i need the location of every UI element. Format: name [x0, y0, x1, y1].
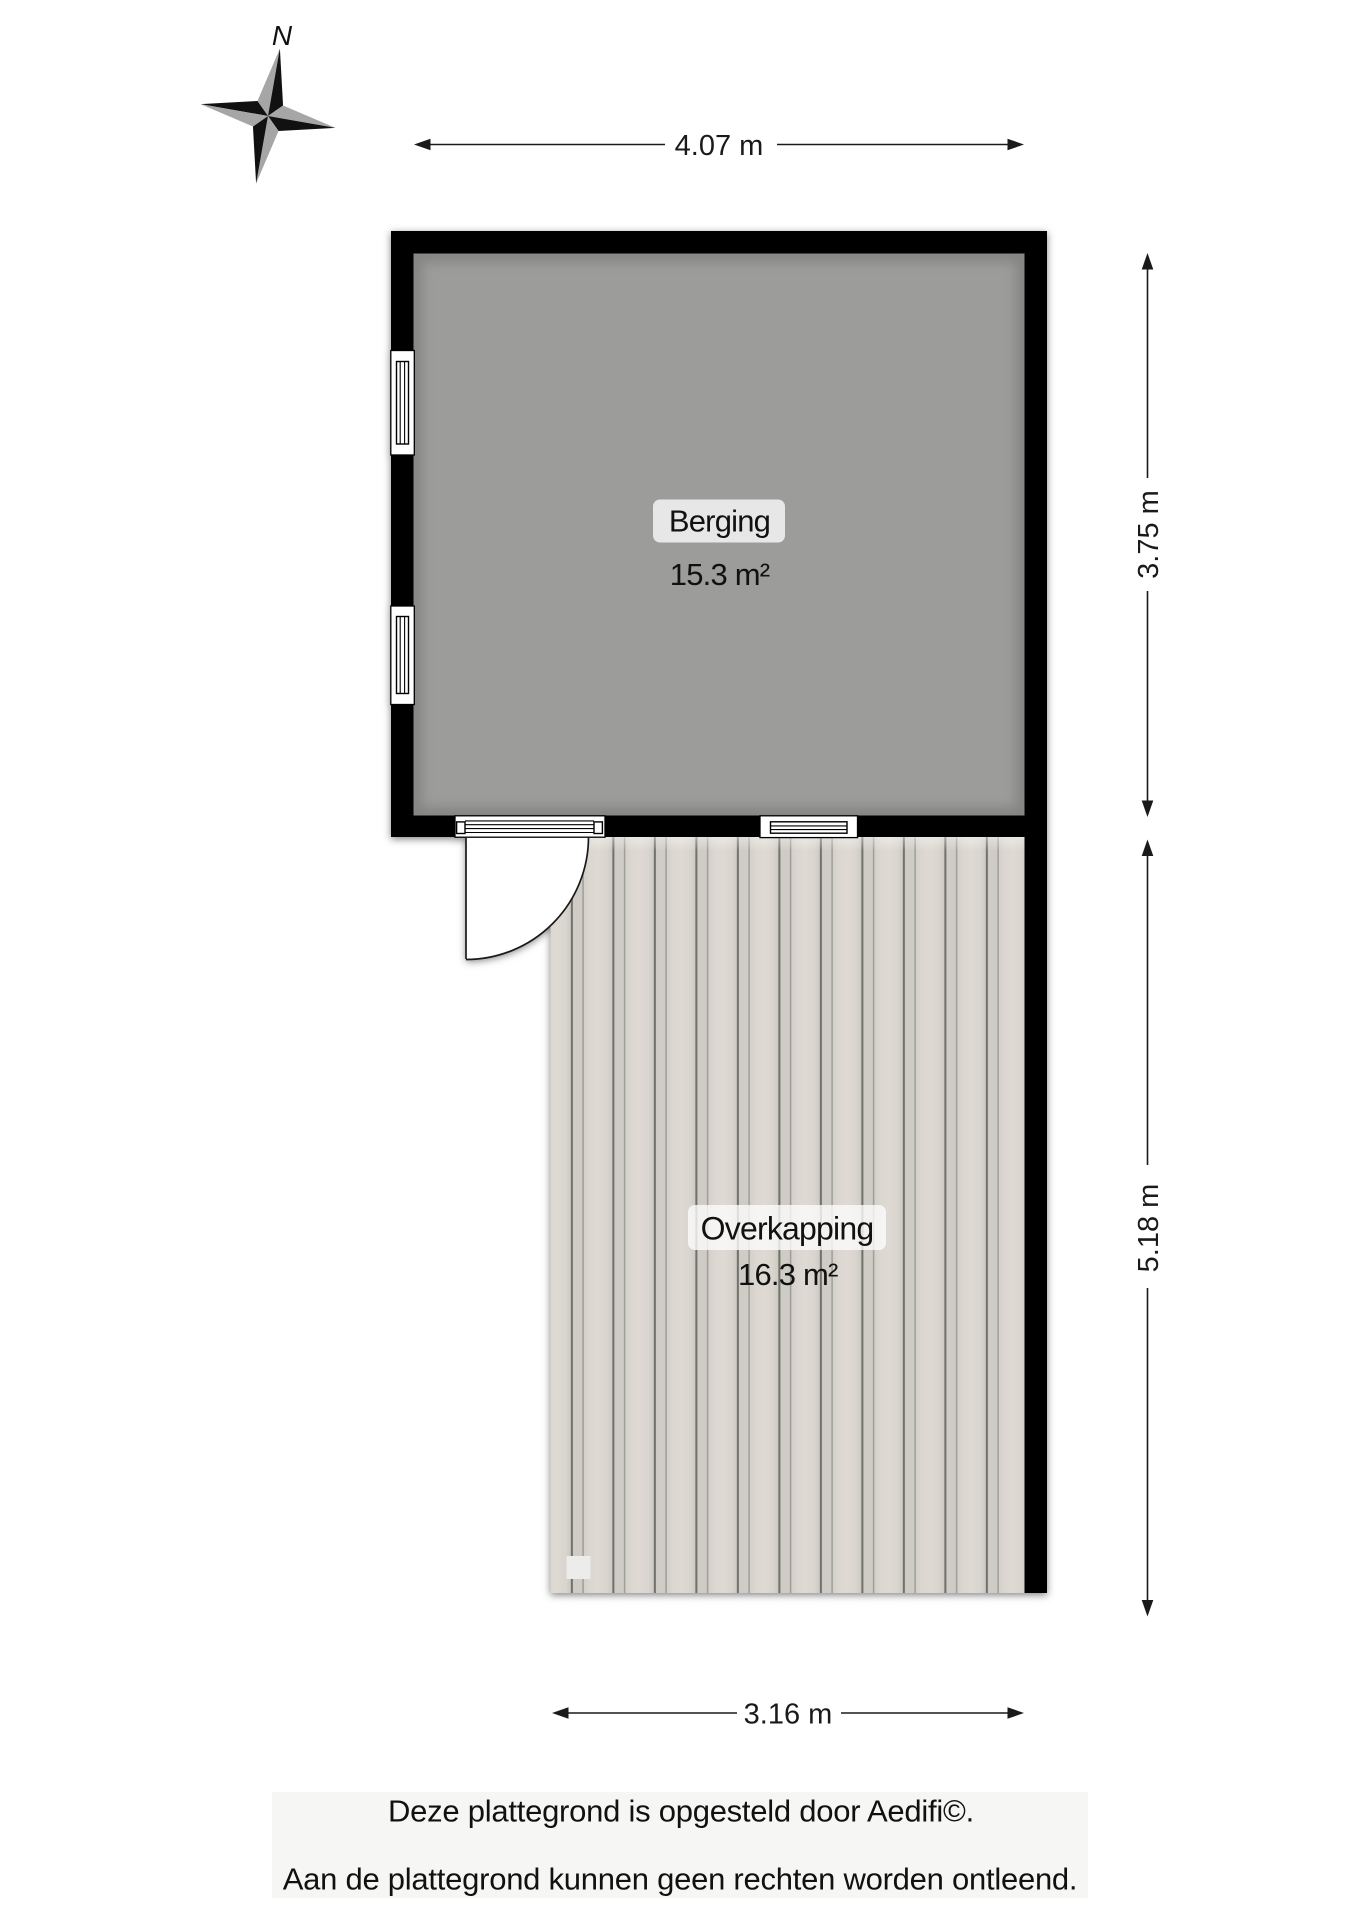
- svg-text:16.3 m²: 16.3 m²: [738, 1257, 838, 1292]
- svg-text:Deze plattegrond is opgesteld: Deze plattegrond is opgesteld door Aedif…: [388, 1794, 974, 1829]
- svg-text:Berging: Berging: [669, 504, 770, 539]
- svg-text:3.75 m: 3.75 m: [1133, 490, 1165, 579]
- svg-text:Overkapping: Overkapping: [701, 1211, 874, 1247]
- svg-text:15.3 m²: 15.3 m²: [670, 557, 770, 592]
- svg-text:3.16 m: 3.16 m: [744, 1699, 833, 1731]
- svg-text:N: N: [272, 20, 293, 51]
- svg-text:4.07 m: 4.07 m: [675, 130, 764, 162]
- svg-text:Aan de plattegrond kunnen geen: Aan de plattegrond kunnen geen rechten w…: [283, 1862, 1078, 1897]
- svg-text:5.18 m: 5.18 m: [1133, 1184, 1165, 1273]
